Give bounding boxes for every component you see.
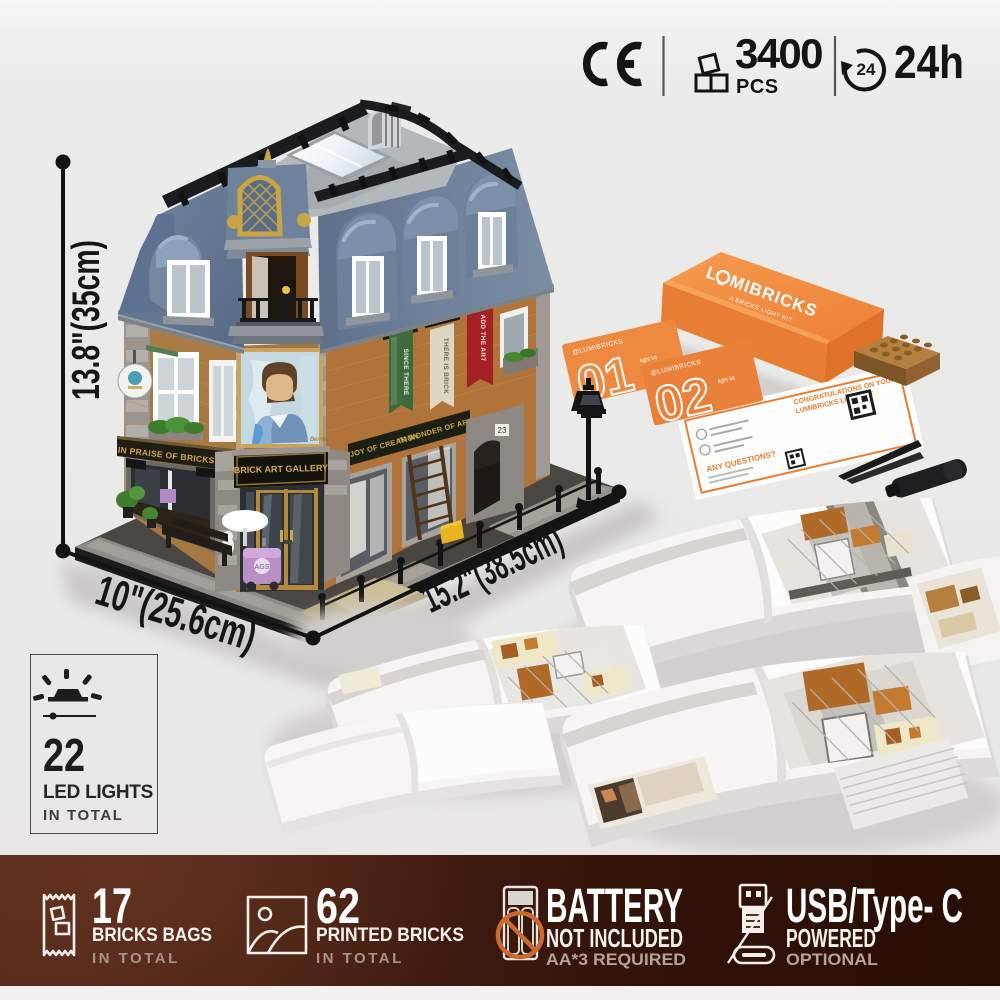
svg-text:LED LIGHTS: LED LIGHTS [43,782,153,803]
svg-text:POWERED: POWERED [786,923,876,953]
svg-text:ADD THE ART: ADD THE ART [479,314,486,361]
svg-text:22: 22 [43,729,85,781]
svg-text:24: 24 [857,60,876,79]
svg-text:NOT INCLUDED: NOT INCLUDED [546,923,683,953]
svg-text:BRICKS BAGS: BRICKS BAGS [92,925,212,946]
svg-text:OPTIONAL: OPTIONAL [786,950,878,969]
svg-text:AGS: AGS [255,564,270,571]
svg-text:23: 23 [498,426,507,435]
svg-text:3400: 3400 [735,30,822,77]
svg-text:24h: 24h [894,36,964,88]
svg-text:IN TOTAL: IN TOTAL [43,807,124,824]
svg-text:THERE IS BRICK: THERE IS BRICK [442,338,449,395]
svg-text:AA*3 REQUIRED: AA*3 REQUIRED [546,950,686,969]
svg-text:Bernini: Bernini [310,437,329,443]
svg-text:IN TOTAL: IN TOTAL [316,950,404,967]
svg-text:SINCE THERE: SINCE THERE [402,348,409,395]
svg-text:PRINTED BRICKS: PRINTED BRICKS [316,925,464,946]
svg-text:IN TOTAL: IN TOTAL [92,950,180,967]
svg-text:PCS: PCS [736,76,779,98]
svg-text:13.8"(35cm): 13.8"(35cm) [65,240,108,400]
